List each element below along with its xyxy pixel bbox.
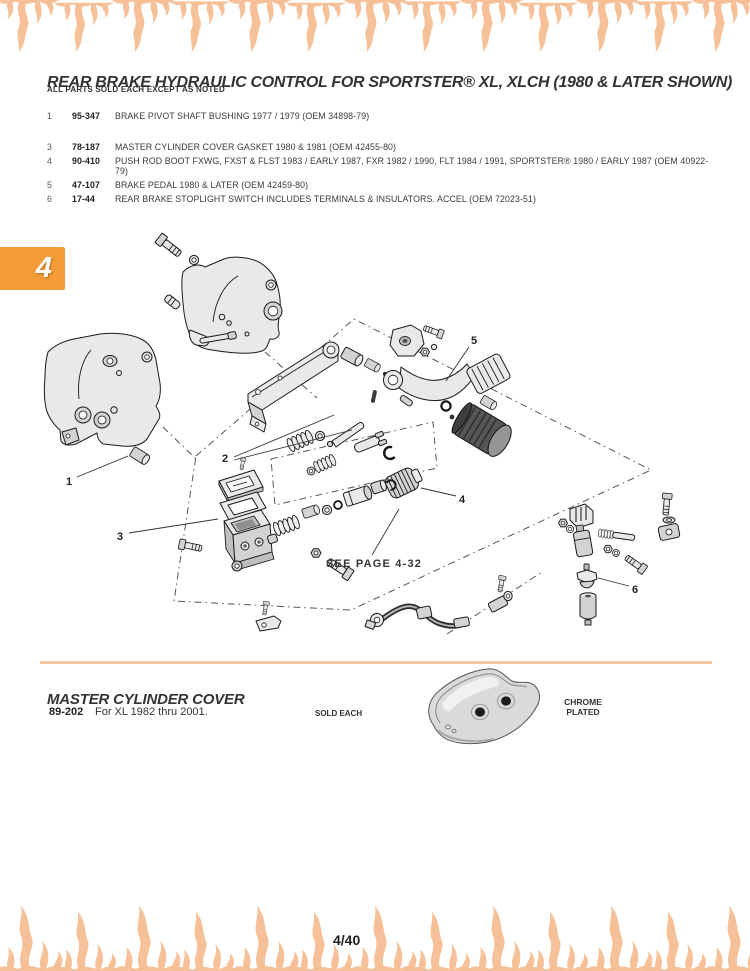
parts-list-row: 1 95-347 BRAKE PIVOT SHAFT BUSHING 1977 … [47, 111, 712, 121]
parts-list-row: 6 17-44 REAR BRAKE STOPLIGHT SWITCH INCL… [47, 194, 712, 204]
part-ref: 6 [47, 194, 72, 204]
flame-border-bottom [0, 899, 750, 971]
diagram-callout-3: 3 [117, 531, 124, 543]
diagram-callout-2: 2 [222, 453, 229, 465]
part-description: BRAKE PEDAL 1980 & LATER (OEM 42459-80) [115, 180, 712, 190]
flame-border-top [0, 0, 750, 58]
parts-list-row: 3 78-187 MASTER CYLINDER COVER GASKET 19… [47, 142, 712, 152]
part-number: 17-44 [72, 194, 115, 204]
diagram-callout-6: 6 [632, 584, 639, 596]
upper-cover-plate [182, 257, 282, 353]
parts-note: ALL PARTS SOLD EACH EXCEPT AS NOTED [47, 85, 225, 94]
section-divider [40, 661, 712, 664]
part-ref: 1 [47, 111, 72, 121]
brake-pedal [384, 353, 512, 420]
pedal-bracket [390, 324, 444, 356]
cover-description: For XL 1982 thru 2001. [95, 706, 208, 718]
part-ref: 4 [47, 156, 72, 176]
stoplight-switch [577, 564, 597, 588]
pedal-rubber [449, 401, 516, 460]
part-description: REAR BRAKE STOPLIGHT SWITCH INCLUDES TER… [115, 194, 712, 204]
part-number: 78-187 [72, 142, 115, 152]
brake-hose [256, 575, 512, 631]
hose-elbow-fitting [488, 591, 512, 612]
catalog-page: REAR BRAKE HYDRAULIC CONTROL FOR SPORTST… [0, 0, 750, 971]
push-rod-boot [383, 464, 425, 500]
cover-part-number: 89-202 [49, 706, 83, 718]
chrome-cover-illustration [418, 664, 568, 759]
pivot-bushing [129, 446, 151, 465]
finish-label: CHROME PLATED [560, 697, 606, 717]
parts-list-row: 5 47-107 BRAKE PEDAL 1980 & LATER (OEM 4… [47, 180, 712, 190]
part-description: PUSH ROD BOOT FXWG, FXST & FLST 1983 / E… [115, 156, 712, 176]
diagram-callout-5: 5 [471, 335, 478, 347]
part-description: BRAKE PIVOT SHAFT BUSHING 1977 / 1979 (O… [115, 111, 712, 121]
diagram-callout-1: 1 [66, 476, 73, 488]
see-page-note: SEE PAGE 4-32 [326, 558, 422, 570]
sold-each-label: SOLD EACH [315, 709, 362, 718]
exploded-diagram: 1 2 3 4 5 6 SEE PAGE 4-32 [0, 215, 750, 670]
stoplight-switch-cluster [559, 493, 681, 625]
parts-list: 1 95-347 BRAKE PIVOT SHAFT BUSHING 1977 … [47, 111, 712, 208]
page-number: 4/40 [333, 932, 360, 948]
diagram-callout-4: 4 [459, 494, 466, 506]
part-number: 90-410 [72, 156, 115, 176]
part-ref: 5 [47, 180, 72, 190]
push-rod-parts [272, 390, 397, 537]
part-description: MASTER CYLINDER COVER GASKET 1980 & 1981… [115, 142, 712, 152]
part-ref: 3 [47, 142, 72, 152]
parts-list-row: 4 90-410 PUSH ROD BOOT FXWG, FXST & FLST… [47, 156, 712, 176]
part-number: 47-107 [72, 180, 115, 190]
lower-cover-plate [44, 333, 160, 446]
part-number: 95-347 [72, 111, 115, 121]
